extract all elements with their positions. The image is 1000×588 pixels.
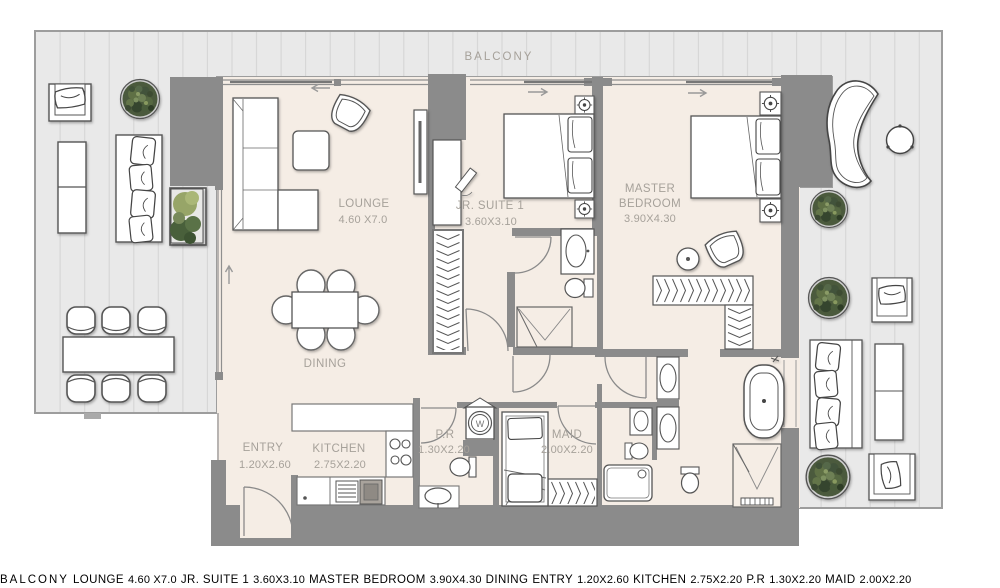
- svg-text:JR. SUITE 1: JR. SUITE 1: [456, 200, 524, 212]
- svg-text:ENTRY: ENTRY: [243, 442, 284, 454]
- svg-text:2.75X2.20: 2.75X2.20: [314, 459, 366, 471]
- svg-text:2.00X2.20: 2.00X2.20: [541, 444, 593, 456]
- svg-text:DINING: DINING: [304, 358, 347, 370]
- svg-text:KITCHEN: KITCHEN: [312, 443, 365, 455]
- svg-text:1.20X2.60: 1.20X2.60: [239, 459, 291, 471]
- svg-text:LOUNGE: LOUNGE: [339, 198, 390, 210]
- svg-text:BALCONY: BALCONY: [465, 51, 534, 63]
- svg-text:MASTER: MASTER: [625, 183, 675, 195]
- svg-text:MAID: MAID: [552, 429, 582, 441]
- svg-text:W: W: [476, 419, 485, 429]
- svg-text:4.60 X7.0: 4.60 X7.0: [339, 214, 388, 226]
- svg-text:P.R: P.R: [436, 429, 455, 441]
- svg-text:3.60X3.10: 3.60X3.10: [465, 216, 517, 228]
- svg-text:BEDROOM: BEDROOM: [619, 198, 681, 210]
- svg-text:1.30X2.20: 1.30X2.20: [418, 444, 470, 456]
- svg-text:3.90X4.30: 3.90X4.30: [624, 213, 676, 225]
